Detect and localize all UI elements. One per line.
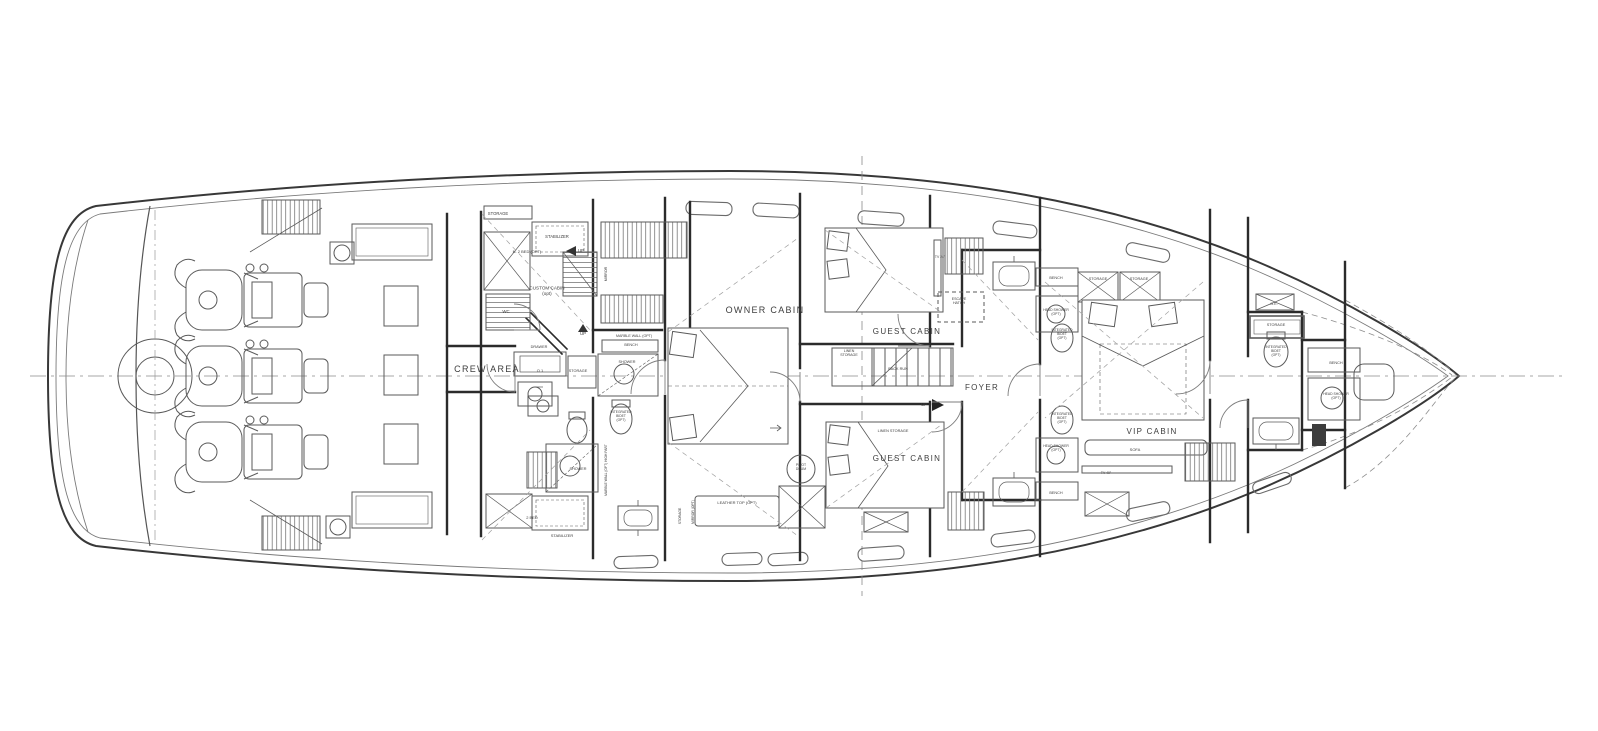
fwd-sink <box>1253 418 1299 450</box>
ann-storage-vip-2: STORAGE <box>1130 277 1149 281</box>
ann-storage-fwd: STORAGE <box>1267 323 1286 327</box>
owner-wardrobe-rack-top <box>601 222 687 258</box>
guest-lower-storage <box>864 512 908 532</box>
vip-rack <box>1185 443 1235 481</box>
vip-low-storage <box>1085 492 1129 516</box>
ann-tv40: TV 40" <box>1101 471 1112 475</box>
ann-up-foyer: UP <box>921 402 927 407</box>
ann-head-shower-lower: HEAD SHOWER(OPT) <box>1043 444 1069 452</box>
yacht-floor-plan: CREW AREAOWNER CABINGUEST CABINGUEST CAB… <box>0 0 1598 731</box>
ann-tv24: TV 24" <box>935 255 946 259</box>
bow-locker-dark <box>1312 424 1326 446</box>
room-vip-cabin: VIP CABIN <box>1126 427 1177 436</box>
tank-bottom-inner <box>356 496 428 524</box>
ann-bidet-lower: INTEGRATEDBIDET(OPT) <box>1051 412 1073 424</box>
pump-bottom <box>326 516 350 538</box>
ann-marble-wall-opt: MARBLE WALL (OPT) <box>616 334 652 338</box>
porthole <box>990 529 1035 547</box>
guest-upper-tv <box>934 240 941 296</box>
tank-side-1 <box>384 286 418 326</box>
up-arrow-foyer <box>932 399 944 411</box>
room-guest-cabin-lower: GUEST CABIN <box>873 454 941 463</box>
owner-bed <box>668 328 788 444</box>
ann-marble-wall-high: MARBLE WALL (OPT) HIGH PART <box>604 444 608 496</box>
ann-back-run: BACK RUN <box>888 367 908 371</box>
ann-n2-bed-opt: N. 2 BED (OPT) <box>513 249 542 254</box>
ann-shower-crew: SHOWER <box>569 467 586 471</box>
ann-custom-cabin: CUSTOM CABIN(opt) <box>529 285 564 296</box>
porthole <box>992 220 1037 238</box>
door-arc <box>631 360 665 394</box>
ann-bench-owner: BENCH <box>624 343 638 347</box>
ann-bidet-owner: INTEGRATEDBIDET(OPT) <box>610 410 632 422</box>
ann-wc: WC <box>502 309 509 314</box>
ann-o1: O 1 <box>537 368 544 373</box>
porthole <box>1125 501 1171 523</box>
hull <box>30 156 1565 596</box>
guest-upper-bed <box>825 228 943 312</box>
tank-side-3 <box>384 424 418 464</box>
ann-up-crew-top: UP <box>578 248 584 253</box>
owner-vanity-storage <box>779 486 825 528</box>
ann-leather-top: LEATHER TOP (OPT) <box>717 500 757 505</box>
ann-up-crew-mid: UP <box>580 331 586 336</box>
room-crew-area: CREW AREA <box>454 364 520 374</box>
tank-top <box>352 224 432 260</box>
pump-top <box>330 242 354 264</box>
guest-lower-rack <box>948 492 984 530</box>
owner-wardrobe-rack-mid <box>601 295 663 323</box>
ann-storage-crew-mid: STORAGE <box>569 369 588 373</box>
vip-cabin <box>1078 272 1235 516</box>
engine-port <box>175 259 328 341</box>
crew-rack-lower <box>527 452 557 488</box>
ann-stabilizer-bottom: STABILIZER <box>551 533 574 538</box>
ann-ge: G.E. <box>1270 302 1278 306</box>
crew-toilet <box>567 412 587 443</box>
vip-tv-cabinet <box>1082 466 1172 473</box>
porthole <box>722 552 762 565</box>
ann-escape-hatch: ESCAPEHATCH <box>952 297 967 305</box>
grating-top <box>262 200 320 234</box>
ann-drawer: DRAWER <box>531 345 548 349</box>
ann-pivot-drum: PIVOTDRUM <box>796 463 806 471</box>
owner-suite <box>598 222 825 536</box>
ann-2-bed: 2 BED <box>526 515 538 520</box>
porthole <box>768 552 809 566</box>
room-foyer: FOYER <box>965 383 999 392</box>
engine-room <box>118 200 432 550</box>
porthole <box>858 210 905 226</box>
ann-stabilizer-top: STABILIZER <box>545 234 569 239</box>
grating-bottom <box>262 516 320 550</box>
ann-storage-vip-1: STORAGE <box>1089 277 1108 281</box>
crew-stairs <box>563 252 597 296</box>
porthole <box>686 201 732 216</box>
owner-sink <box>618 500 658 536</box>
tank-top-inner <box>356 228 428 256</box>
room-guest-cabin-upper: GUEST CABIN <box>873 327 941 336</box>
ann-mirror-opt-vert: MIRROR (OPT) <box>691 500 695 524</box>
fwd-bench <box>1308 348 1360 372</box>
foyer-stairs <box>872 348 953 386</box>
door-arc <box>1220 400 1248 428</box>
floor-plan-page: CREW AREAOWNER CABINGUEST CABINGUEST CAB… <box>0 0 1598 731</box>
stabilizer-box-bottom <box>532 496 588 530</box>
ann-sofa: SOFA <box>1130 447 1141 452</box>
ann-bidet-upper: INTEGRATEDBIDET(OPT) <box>1051 328 1073 340</box>
room-owner-cabin: OWNER CABIN <box>726 305 805 315</box>
vip-bed <box>1082 300 1204 420</box>
ann-linen-storage-upper: LINENSTORAGE <box>840 349 858 357</box>
porthole <box>753 203 800 218</box>
fwd-storage <box>1250 316 1304 338</box>
tank-side-2 <box>384 355 418 395</box>
ann-bench-lower: BENCH <box>1049 491 1063 495</box>
ann-mirror-vert: MIRROR <box>604 266 608 281</box>
porthole <box>858 545 905 561</box>
guest-upper-sink <box>993 256 1035 290</box>
engine-starboard <box>175 411 328 493</box>
ann-linen-storage-lower: LINEN STORAGE <box>878 429 909 433</box>
door-arc <box>1008 364 1040 396</box>
tank-bottom <box>352 492 432 528</box>
ann-bench-fwd: BENCH <box>1329 361 1343 365</box>
ann-shower-owner: SHOWER <box>618 360 635 364</box>
porthole <box>614 555 658 569</box>
ann-bidet-fwd: INTEGRATEDBIDET(OPT) <box>1265 345 1287 357</box>
ann-bench-upper: BENCH <box>1049 276 1063 280</box>
guest-upper-rack <box>945 238 983 274</box>
porthole <box>1125 242 1171 264</box>
ann-storage-vert: STORAGE <box>678 507 682 524</box>
ann-storage-crew-top: STORAGE <box>488 211 509 216</box>
crew-bunk-lower <box>486 494 532 528</box>
